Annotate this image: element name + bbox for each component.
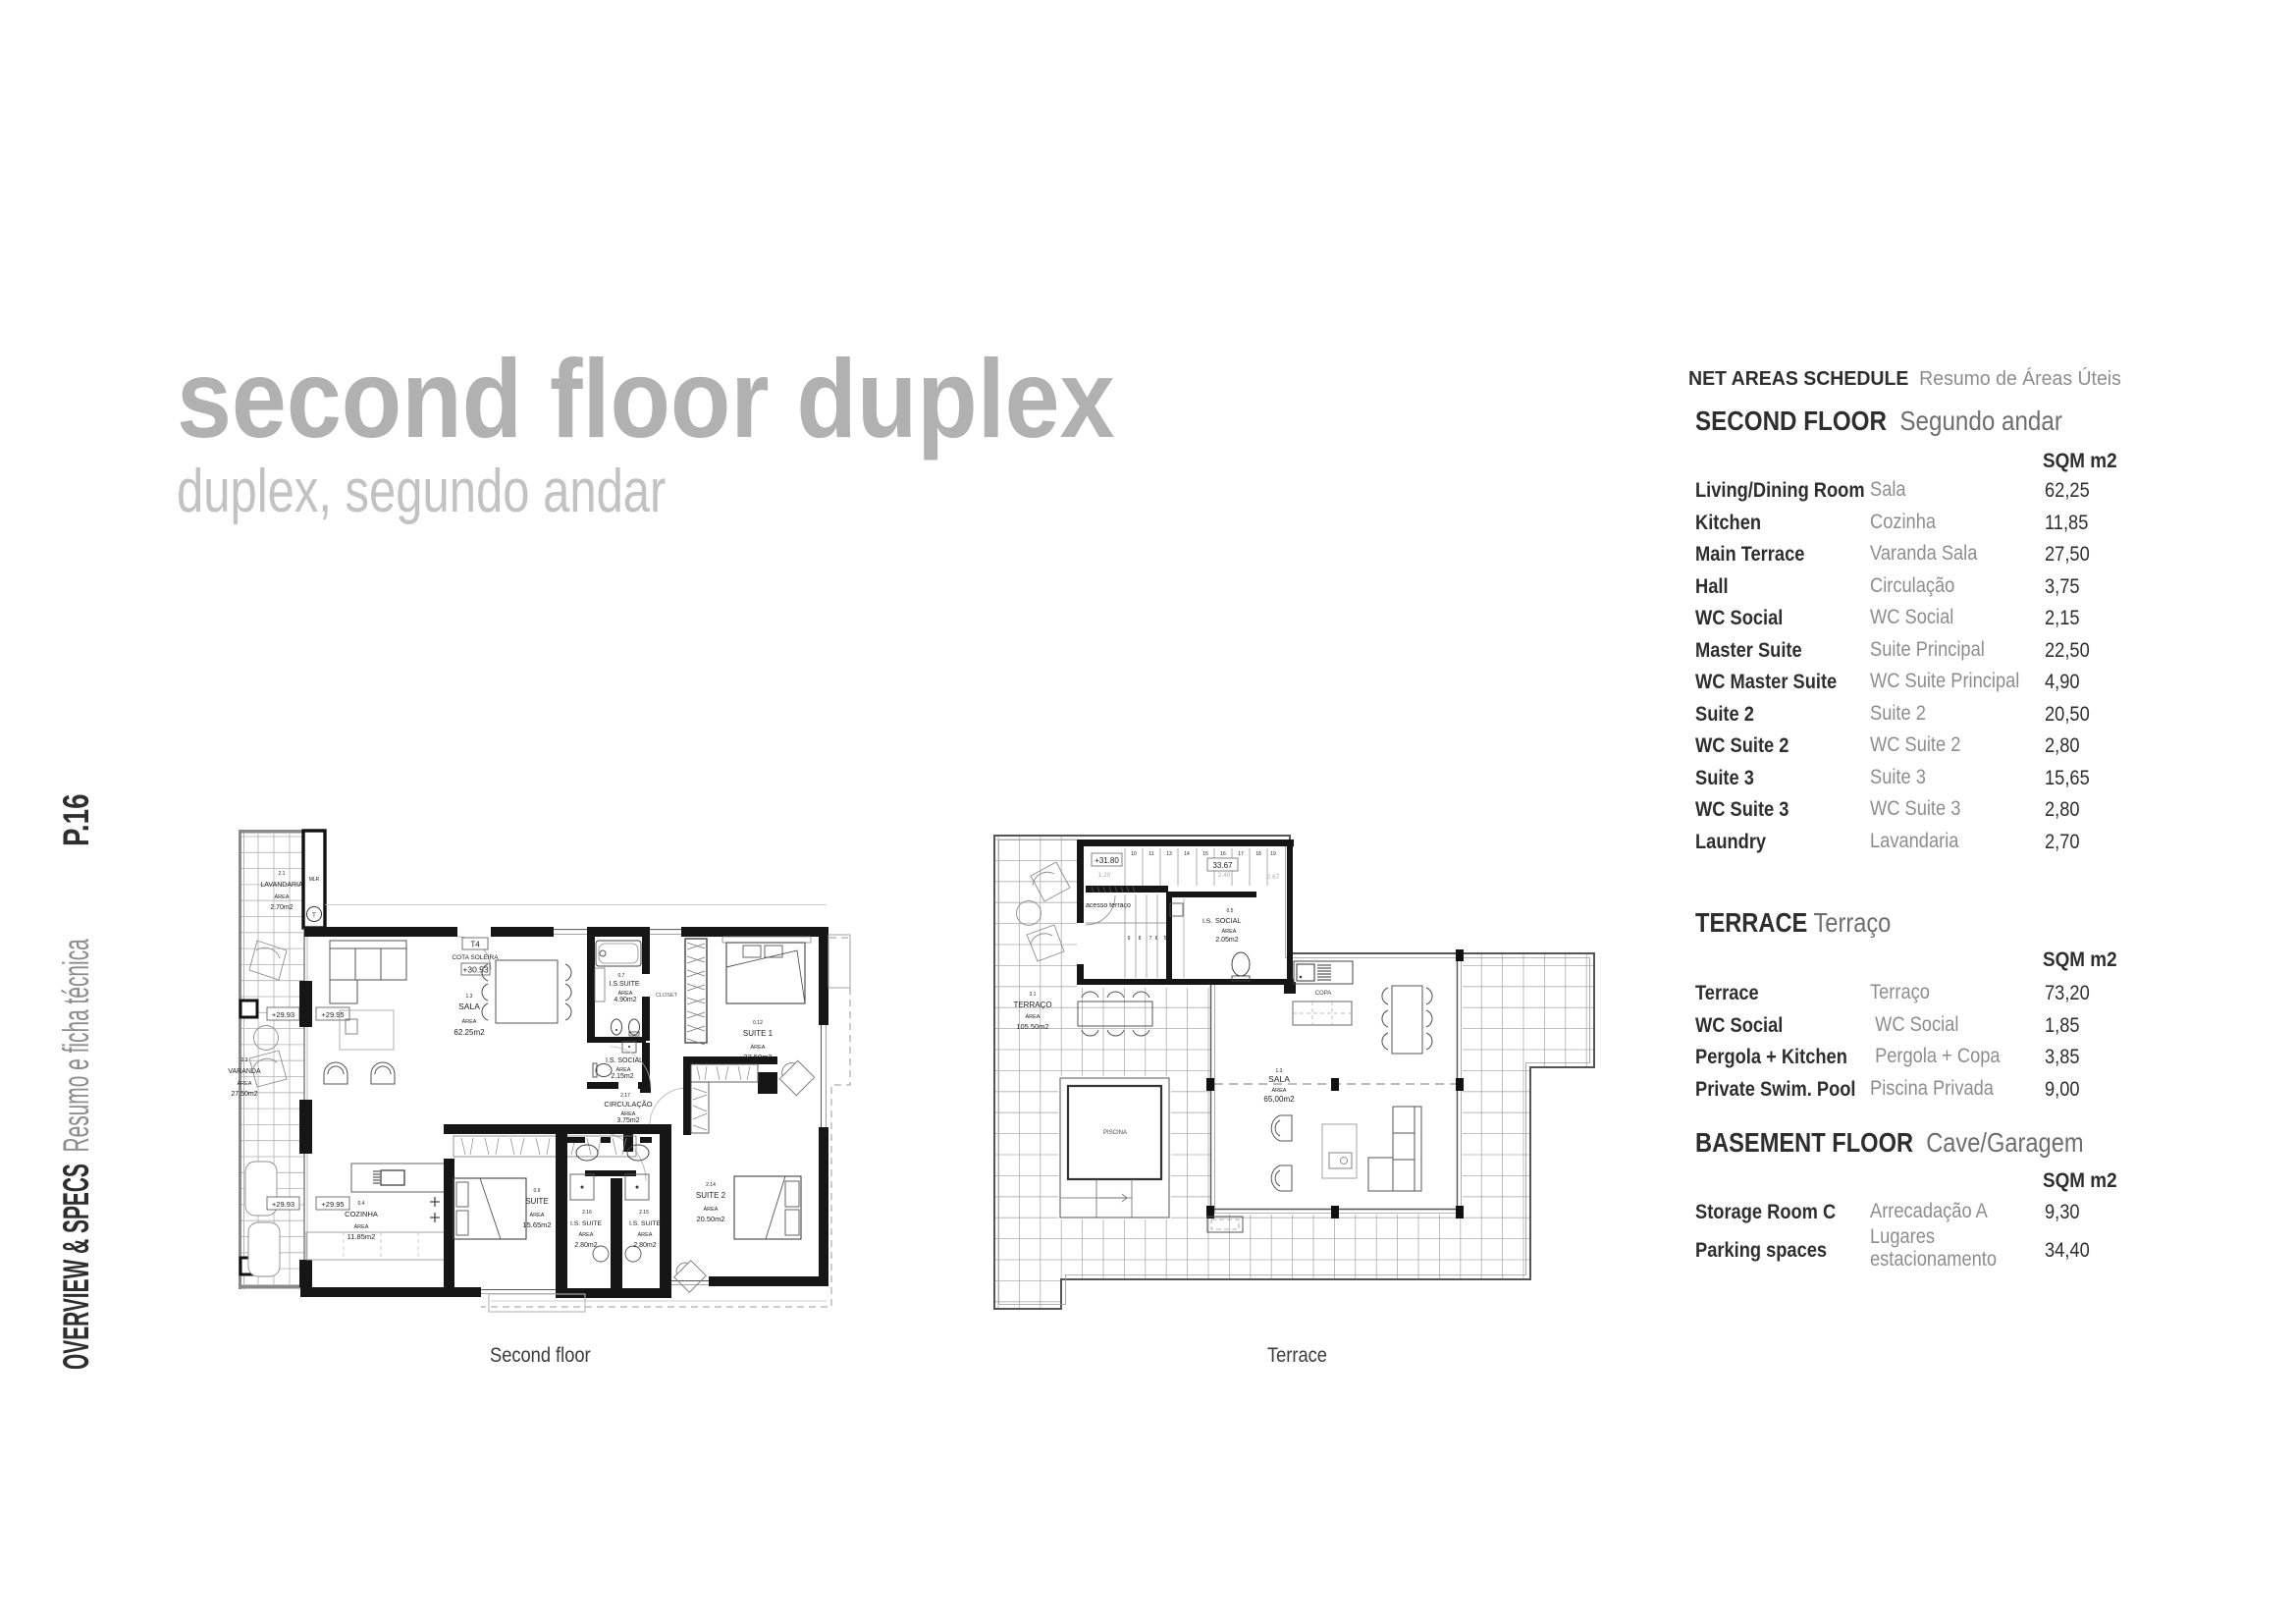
svg-text:2.14: 2.14 [706,1182,716,1188]
svg-text:15: 15 [1202,851,1208,857]
svg-text:+29.93: +29.93 [272,1010,294,1019]
svg-text:SUITE: SUITE [525,1197,549,1206]
svg-text:2.80m2: 2.80m2 [633,1242,656,1249]
svg-text:2.05m2: 2.05m2 [1215,937,1238,944]
svg-text:+29.95: +29.95 [321,1010,344,1019]
svg-text:2.40: 2.40 [1218,872,1231,879]
svg-text:SALA: SALA [458,1001,480,1011]
svg-text:17: 17 [1238,851,1244,857]
svg-text:0.9: 0.9 [534,1188,541,1194]
svg-text:CIRCULAÇÃO: CIRCULAÇÃO [604,1100,652,1109]
svg-text:2.16: 2.16 [582,1210,592,1216]
svg-text:T: T [312,913,316,919]
svg-text:COPA: COPA [1315,991,1332,997]
svg-text:I.S. SUITE: I.S. SUITE [570,1220,603,1227]
svg-text:2.1: 2.1 [279,871,286,877]
svg-text:SOCIAL: SOCIAL [1215,916,1241,925]
svg-text:4.90m2: 4.90m2 [614,997,636,1003]
svg-text:33.67: 33.67 [1212,861,1233,870]
svg-text:I.S.SUITE: I.S.SUITE [609,981,639,988]
svg-text:I.S. SOCIAL: I.S. SOCIAL [606,1057,643,1064]
svg-text:2.15m2: 2.15m2 [611,1073,633,1080]
svg-text:+29.95: +29.95 [321,1200,344,1209]
svg-text:ÁREA: ÁREA [238,1080,252,1087]
svg-text:0.12: 0.12 [753,1020,763,1026]
svg-text:2.17: 2.17 [620,1093,630,1099]
svg-text:2.3: 2.3 [241,1057,248,1063]
svg-text:19: 19 [1270,851,1276,857]
svg-text:ÁREA: ÁREA [704,1206,719,1213]
svg-text:2.70m2: 2.70m2 [270,904,293,911]
svg-text:2.67: 2.67 [1267,874,1280,881]
svg-text:8: 8 [1139,936,1142,942]
svg-text:T4: T4 [470,941,480,949]
svg-text:acesso terraço: acesso terraço [1086,902,1131,909]
svg-text:ÁREA: ÁREA [621,1110,636,1117]
svg-text:I.S. SUITE: I.S. SUITE [629,1220,662,1227]
svg-text:16: 16 [1220,851,1226,857]
svg-text:11.85m2: 11.85m2 [347,1232,376,1241]
svg-text:ÁREA: ÁREA [751,1044,766,1051]
svg-text:ÁREA: ÁREA [275,893,290,900]
svg-text:105.50m2: 105.50m2 [1016,1022,1048,1031]
svg-text:13: 13 [1166,851,1172,857]
svg-text:1.20: 1.20 [1098,872,1111,879]
svg-text:0.4: 0.4 [358,1201,365,1207]
svg-text:ÁREA: ÁREA [1272,1087,1287,1094]
svg-text:MLR: MLR [309,877,320,883]
svg-text:ÁREA: ÁREA [462,1018,477,1025]
svg-text:6: 6 [1155,936,1158,942]
svg-text:9: 9 [1128,936,1131,942]
svg-text:7: 7 [1149,936,1152,942]
svg-text:ÁREA: ÁREA [1026,1013,1041,1020]
svg-text:+29.93: +29.93 [272,1200,294,1209]
svg-text:0.7: 0.7 [618,973,625,979]
svg-text:ÁREA: ÁREA [616,1066,631,1073]
svg-text:0.5: 0.5 [1227,908,1234,914]
svg-text:TERRAÇO: TERRAÇO [1013,1001,1051,1009]
svg-text:ÁREA: ÁREA [354,1223,369,1230]
svg-text:ÁREA: ÁREA [618,990,633,997]
svg-text:15.65m2: 15.65m2 [522,1220,551,1229]
svg-text:14: 14 [1184,851,1190,857]
svg-text:LAVANDARIA: LAVANDARIA [260,882,303,889]
svg-text:3.75m2: 3.75m2 [616,1117,639,1124]
svg-text:18: 18 [1255,851,1261,857]
svg-text:3.1: 3.1 [1030,992,1037,998]
svg-text:SALA: SALA [1268,1074,1290,1084]
svg-text:ÁREA: ÁREA [530,1212,545,1218]
svg-text:COTA SOLEIRA: COTA SOLEIRA [452,954,499,961]
svg-text:65,00m2: 65,00m2 [1263,1095,1295,1104]
svg-text:SUITE 1: SUITE 1 [743,1029,774,1038]
svg-text:I.S.: I.S. [1202,918,1212,925]
svg-text:PISCINA: PISCINA [1103,1130,1127,1136]
svg-text:COZINHA: COZINHA [345,1210,378,1218]
svg-text:CLOSET: CLOSET [656,993,678,999]
svg-text:20.50m2: 20.50m2 [696,1215,724,1223]
svg-text:62.25m2: 62.25m2 [454,1028,485,1037]
svg-text:+31.80: +31.80 [1095,856,1119,865]
svg-text:2.15: 2.15 [639,1210,649,1216]
svg-text:ÁREA: ÁREA [638,1231,653,1238]
svg-text:2.80m2: 2.80m2 [574,1242,597,1249]
svg-text:ÁREA: ÁREA [1222,928,1237,935]
svg-text:VARANDA: VARANDA [228,1068,261,1075]
svg-text:10: 10 [1131,851,1137,857]
svg-text:SUITE 2: SUITE 2 [696,1191,726,1200]
svg-text:ÁREA: ÁREA [579,1231,594,1238]
svg-text:1.3: 1.3 [466,994,473,1000]
svg-text:27.50m2: 27.50m2 [231,1091,257,1098]
svg-text:11: 11 [1148,851,1153,857]
